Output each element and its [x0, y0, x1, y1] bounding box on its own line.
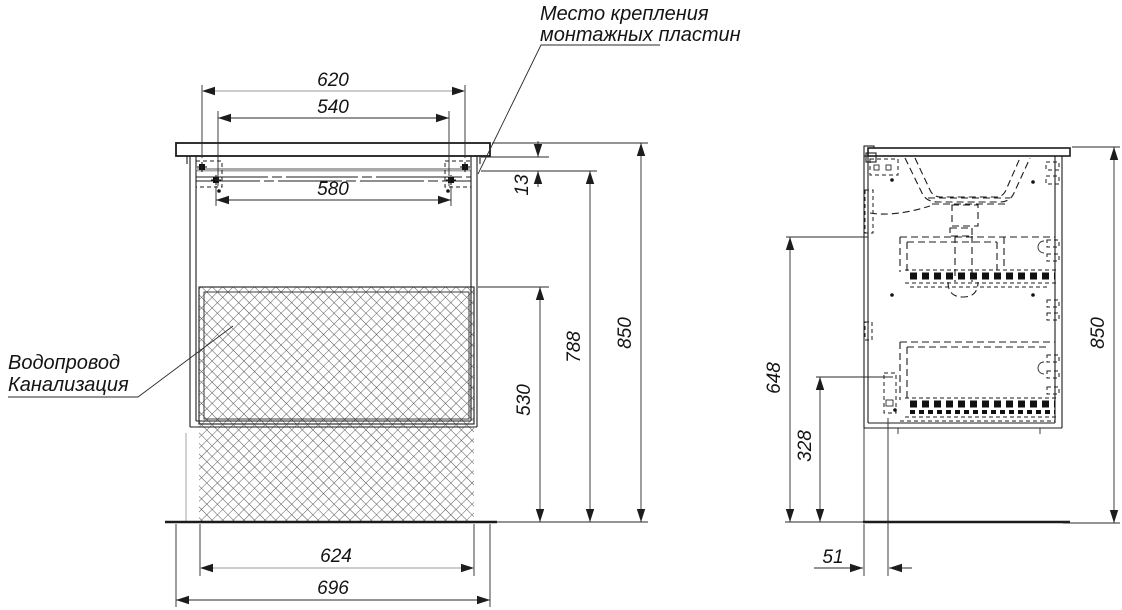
- upper-drawer: [900, 237, 1058, 287]
- mounting-plates-note: Место крепления монтажных пластин: [478, 3, 741, 174]
- dim-850-front-label: 850: [615, 317, 636, 349]
- side-view-dimensions: 648 328 850 51: [764, 147, 1120, 576]
- dim-540-label: 540: [317, 97, 349, 118]
- dim-328-label: 328: [795, 430, 816, 462]
- side-view: [785, 146, 1120, 523]
- dim-13-label: 13: [512, 174, 533, 196]
- dim-624-label: 624: [320, 546, 352, 567]
- vanity-cabinet-drawing: 620 540 580 13 788 850 530 624 696 Место…: [0, 0, 1122, 610]
- dim-850-side-label: 850: [1088, 317, 1109, 349]
- countertop-side: [868, 148, 1070, 156]
- countertop-front: [176, 143, 490, 156]
- mounting-plates-leader-line: [478, 45, 660, 174]
- dim-620-label: 620: [317, 70, 349, 91]
- plumbing-note-line2: Канализация: [8, 374, 129, 396]
- lower-drawer: [900, 342, 1058, 421]
- mounting-plates-note-line2: монтажных пластин: [540, 24, 741, 46]
- plumbing-note-line1: Водопровод: [8, 352, 120, 374]
- mounting-plates-note-line1: Место крепления: [540, 3, 709, 25]
- sink-bowl: [870, 158, 1030, 214]
- dim-530-label: 530: [514, 384, 535, 416]
- dim-788-label: 788: [564, 331, 585, 363]
- plumbing-hatch-area: [199, 287, 474, 521]
- dim-51-label: 51: [822, 547, 843, 568]
- technical-drawing-page: 620 540 580 13 788 850 530 624 696 Место…: [0, 0, 1122, 610]
- dim-648-label: 648: [764, 362, 785, 394]
- dim-580-label: 580: [317, 179, 349, 200]
- mounting-rail-band: [196, 168, 471, 172]
- dim-696-label: 696: [317, 578, 349, 599]
